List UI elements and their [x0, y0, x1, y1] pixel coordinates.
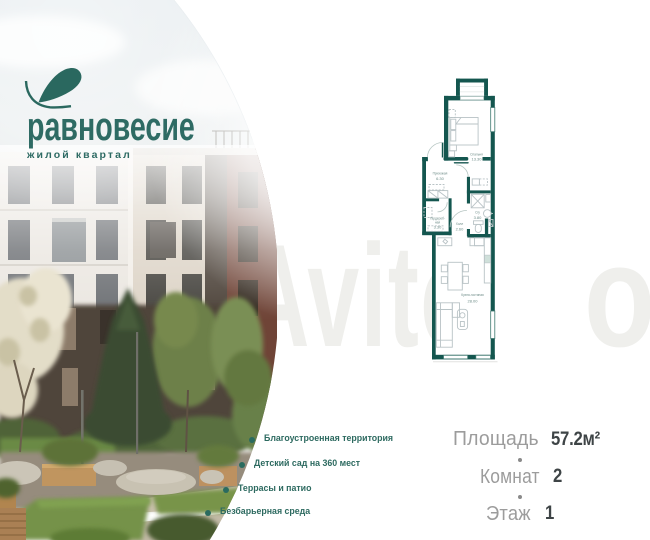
- svg-text:2.60: 2.60: [456, 227, 465, 232]
- svg-text:28.00: 28.00: [467, 299, 478, 304]
- svg-text:Кухня-гостиная: Кухня-гостиная: [461, 293, 484, 297]
- svg-text:13.30: 13.30: [471, 156, 482, 161]
- svg-text:Прихожая: Прихожая: [433, 172, 448, 176]
- svg-text:Холл: Холл: [456, 222, 464, 226]
- svg-text:С/у: С/у: [475, 211, 480, 215]
- svg-text:3.80: 3.80: [474, 215, 483, 220]
- svg-text:3.30: 3.30: [434, 225, 443, 230]
- svg-text:6.30: 6.30: [436, 176, 445, 181]
